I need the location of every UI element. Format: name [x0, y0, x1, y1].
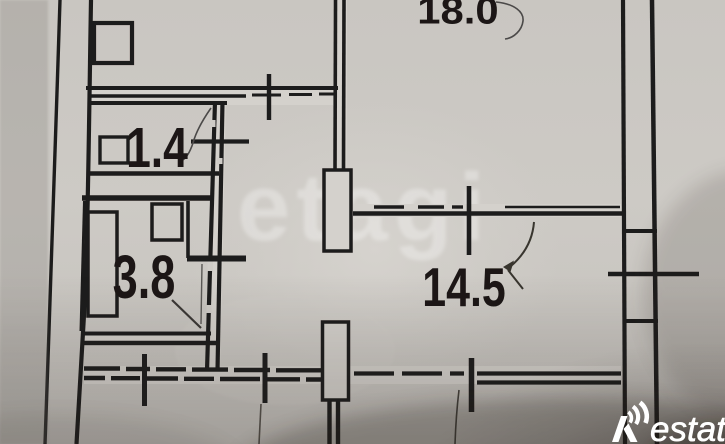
- svg-text:estate: estate: [650, 410, 725, 444]
